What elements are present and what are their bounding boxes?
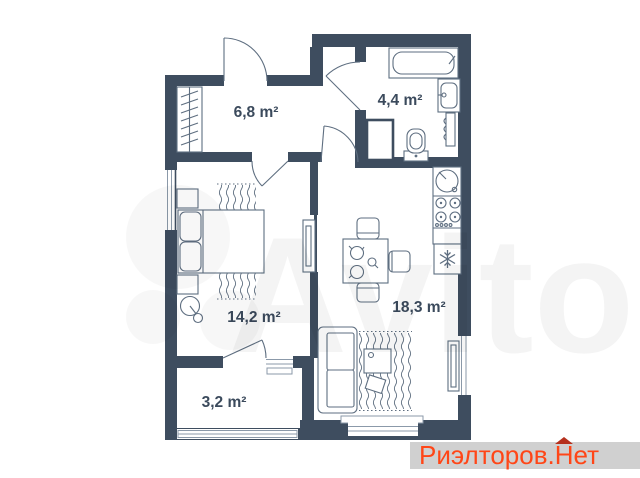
wall-balcony-top-right — [293, 356, 310, 368]
chair-icon — [357, 218, 379, 239]
wall-divider-lower — [310, 272, 318, 358]
living-window — [341, 416, 423, 436]
room-label-kitchen-living: 18,3 m² — [392, 299, 445, 316]
floor-lamp-icon — [181, 297, 203, 323]
bathtub-icon — [389, 48, 458, 78]
wall-left — [165, 75, 177, 440]
floor-plan: 6,8 m² 4,4 m² 14,2 m² 18,3 m² 3,2 m² Avi… — [0, 0, 640, 478]
bedside-table-icon — [177, 275, 198, 294]
dining-table-icon — [343, 239, 388, 283]
living-room-door — [321, 126, 358, 162]
wall-top — [312, 34, 470, 47]
towel-radiator-icon — [444, 113, 455, 146]
wardrobe-icon — [177, 87, 202, 152]
room-label-hallway: 6,8 m² — [234, 104, 279, 121]
bathroom-door — [326, 62, 360, 110]
bedside-table-icon — [177, 189, 198, 208]
wall-entry-niche — [310, 47, 323, 86]
kitchen-sink-icon — [436, 170, 458, 192]
wall-divider-upper — [310, 152, 318, 215]
radiator-icon — [448, 341, 459, 391]
room-label-bedroom: 14,2 m² — [227, 309, 280, 326]
room-label-balcony: 3,2 m² — [202, 394, 247, 411]
tv-console-icon — [303, 220, 315, 272]
balcony-door — [223, 340, 266, 358]
balcony-door-window — [266, 356, 293, 374]
toilet-icon — [404, 129, 428, 161]
entrance-door — [224, 38, 267, 81]
washbasin-icon — [438, 79, 460, 112]
double-bed-icon — [178, 210, 264, 273]
wall-hall-top-left — [165, 75, 224, 86]
duct-shaft-icon — [367, 120, 393, 160]
pillow-icon — [180, 242, 201, 271]
realtor-watermark-text-2: Нет — [555, 440, 599, 470]
roof-icon — [555, 437, 573, 444]
bedroom-window — [165, 170, 177, 230]
chair-icon — [357, 283, 379, 302]
realtor-watermark-text-1: Риэлторов. — [419, 440, 555, 470]
bedroom-door — [252, 161, 288, 186]
wall-balcony-top-left — [165, 356, 223, 368]
room-label-bathroom: 4,4 m² — [378, 92, 423, 109]
wall-bath-left-top — [355, 47, 366, 62]
fridge-icon — [434, 244, 461, 274]
chair-icon — [389, 251, 410, 272]
wall-bedroom-top-left — [165, 152, 252, 162]
pillow-icon — [180, 212, 201, 241]
balcony-window — [177, 429, 298, 439]
sofa-icon — [318, 327, 357, 413]
coffee-table-icon — [364, 349, 391, 373]
kitchen-window — [458, 336, 471, 395]
floor-plan-page: 6,8 m² 4,4 m² 14,2 m² 18,3 m² 3,2 m² Avi… — [0, 0, 640, 478]
realtor-watermark: Риэлторов.Нет — [410, 442, 640, 469]
